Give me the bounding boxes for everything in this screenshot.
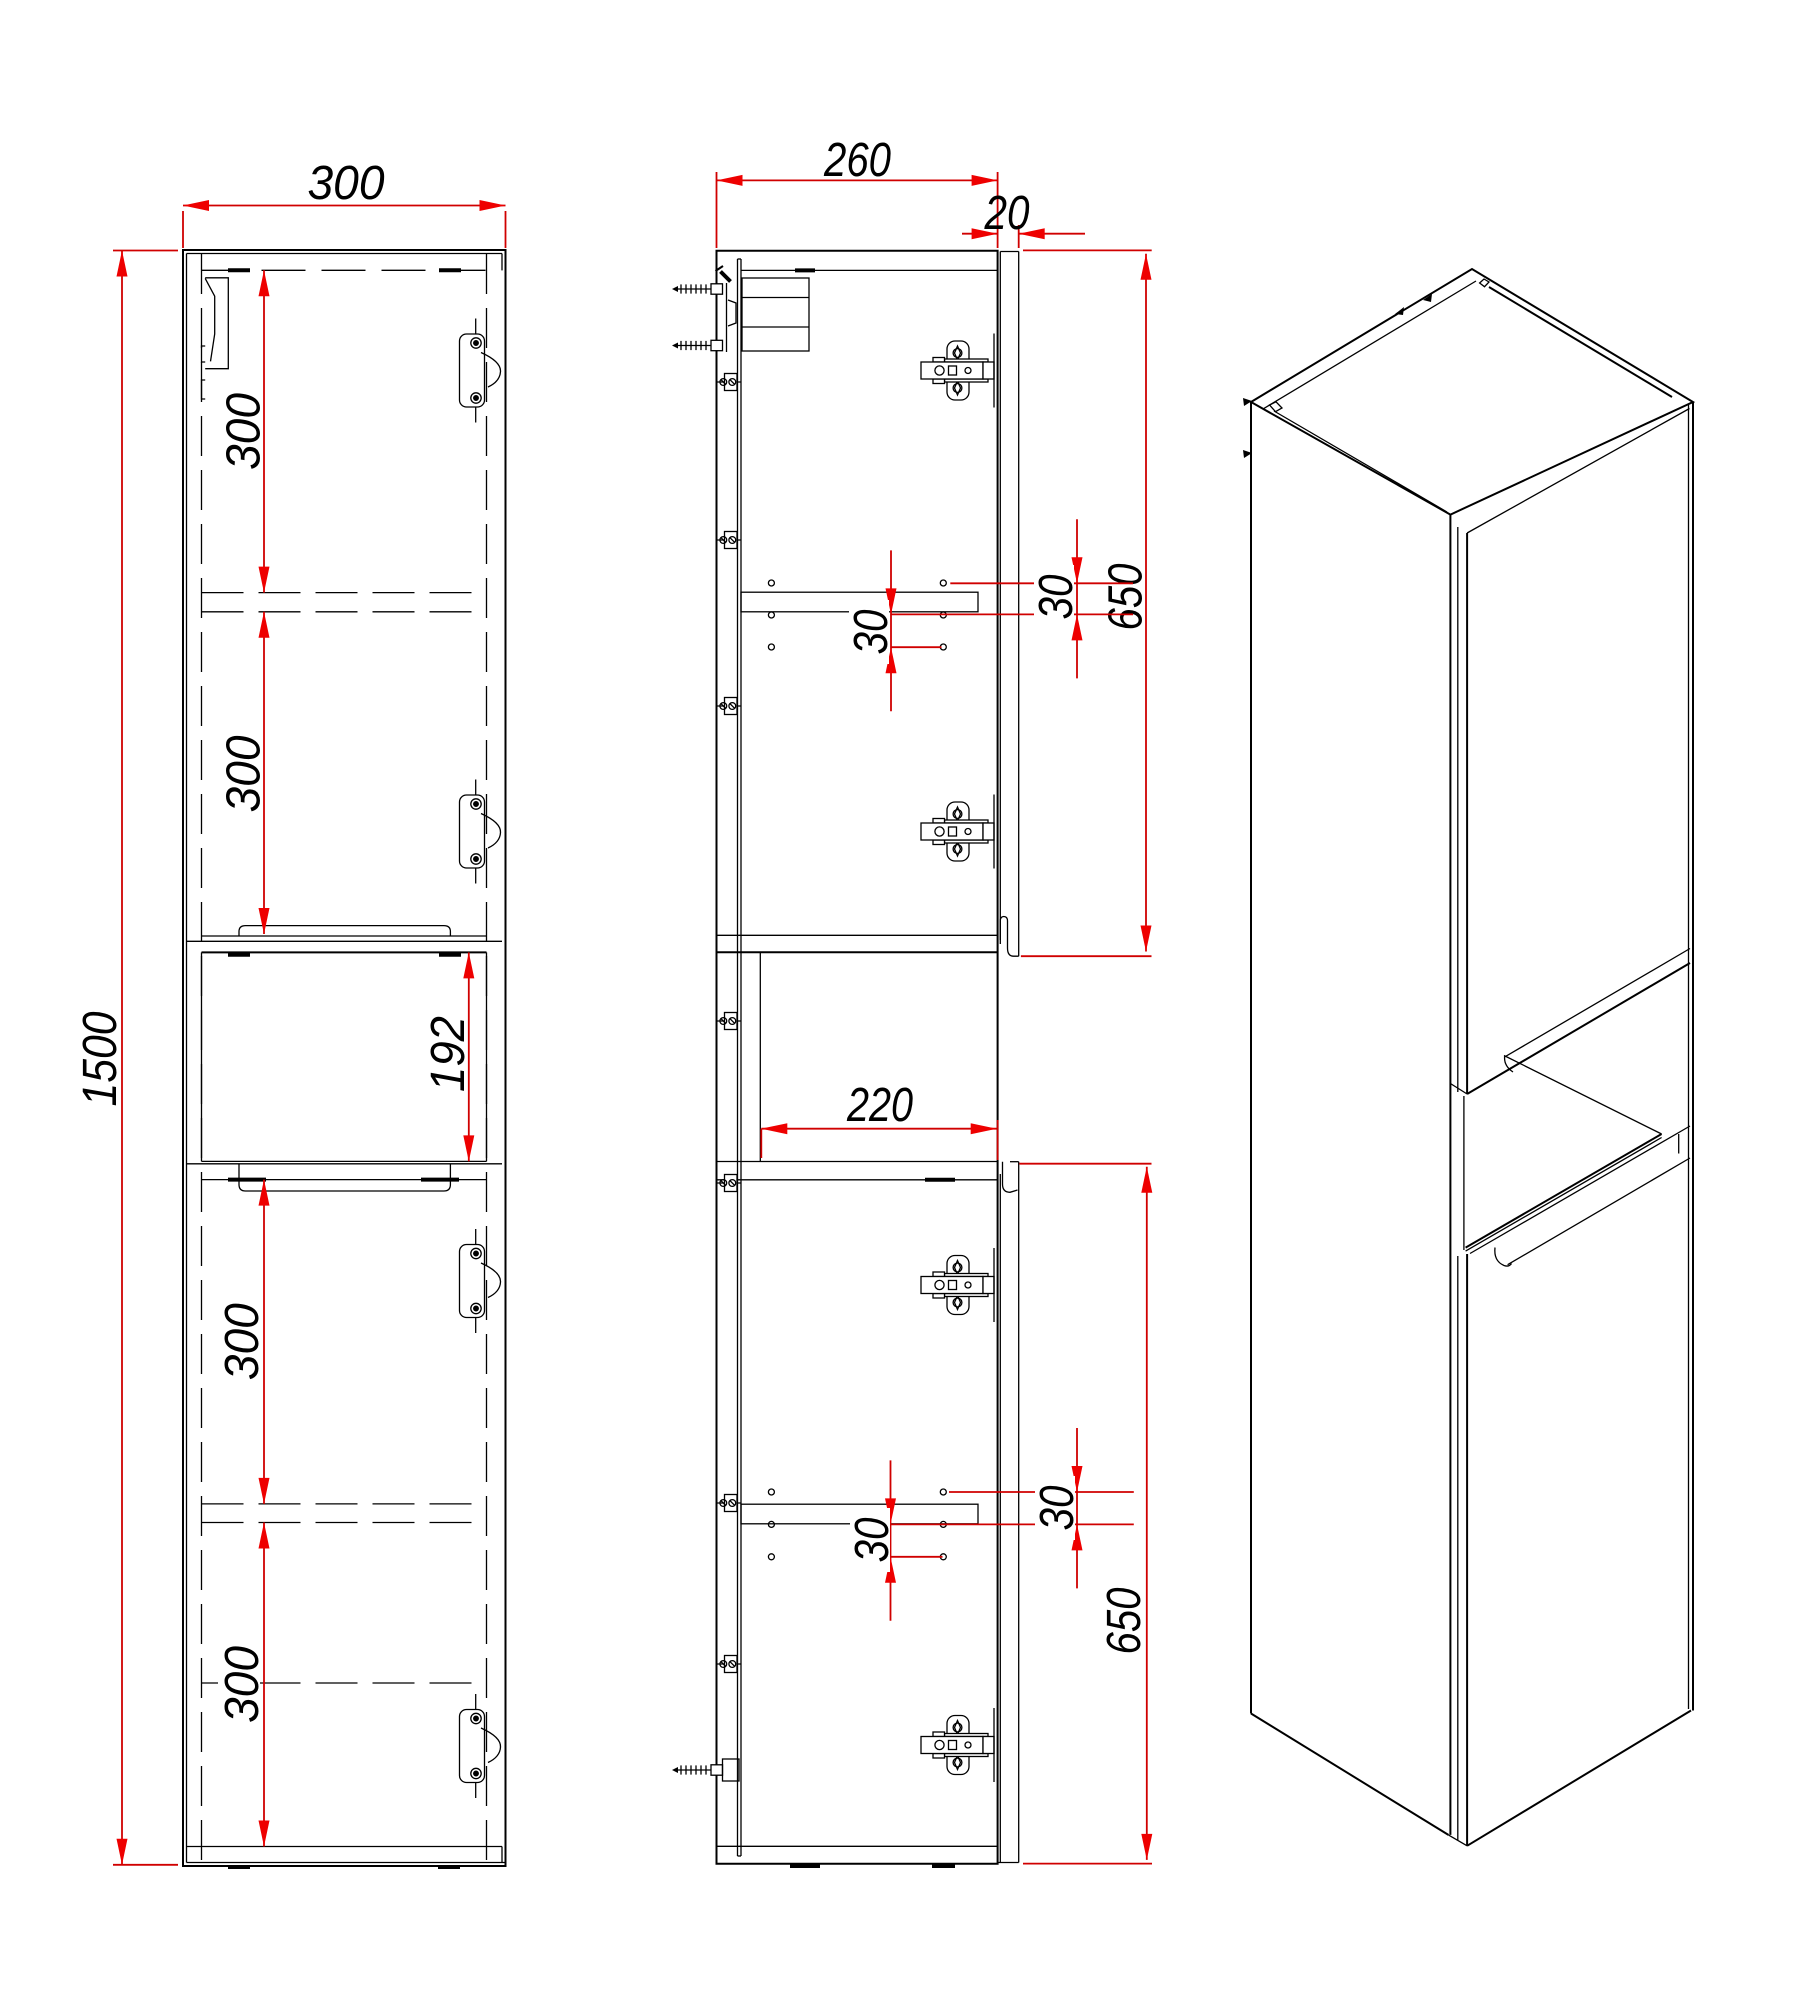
svg-text:30: 30 [1030,574,1083,619]
svg-text:20: 20 [984,187,1030,240]
svg-text:650: 650 [1098,1587,1151,1654]
svg-text:30: 30 [845,609,898,654]
svg-text:220: 220 [846,1079,913,1132]
svg-text:300: 300 [218,735,271,812]
svg-text:300: 300 [218,393,271,470]
svg-text:1500: 1500 [74,1011,127,1106]
svg-text:300: 300 [216,1303,269,1380]
svg-text:300: 300 [216,1646,269,1723]
svg-text:30: 30 [846,1517,899,1562]
svg-text:300: 300 [308,157,385,210]
svg-text:192: 192 [422,1016,475,1092]
svg-text:650: 650 [1100,563,1153,630]
svg-text:30: 30 [1031,1485,1084,1530]
svg-text:260: 260 [823,134,891,187]
